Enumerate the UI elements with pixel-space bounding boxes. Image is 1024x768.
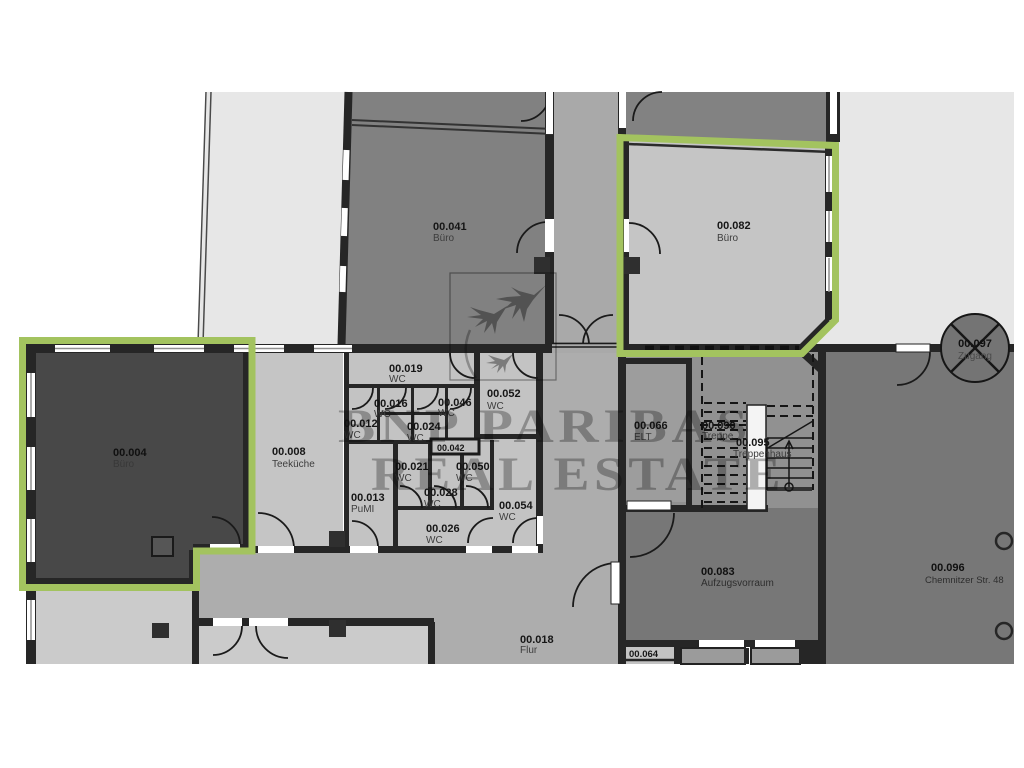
svg-text:Büro: Büro bbox=[717, 233, 739, 244]
svg-text:Büro: Büro bbox=[113, 459, 135, 470]
svg-text:00.082: 00.082 bbox=[717, 220, 751, 232]
svg-text:00.064: 00.064 bbox=[629, 649, 659, 660]
svg-text:00.004: 00.004 bbox=[113, 447, 148, 459]
svg-text:Flur: Flur bbox=[520, 645, 538, 656]
svg-text:Büro: Büro bbox=[433, 233, 455, 244]
svg-text:Aufzugsvorraum: Aufzugsvorraum bbox=[701, 578, 774, 589]
svg-text:REAL ESTATE: REAL ESTATE bbox=[371, 448, 785, 501]
svg-text:Zugang: Zugang bbox=[958, 351, 992, 362]
svg-text:Teeküche: Teeküche bbox=[272, 459, 315, 470]
svg-text:WC: WC bbox=[426, 535, 443, 546]
svg-text:00.008: 00.008 bbox=[272, 446, 306, 458]
svg-text:PuMI: PuMI bbox=[351, 504, 374, 515]
svg-text:00.041: 00.041 bbox=[433, 221, 467, 233]
svg-text:00.083: 00.083 bbox=[701, 566, 735, 578]
svg-text:00.054: 00.054 bbox=[499, 500, 534, 512]
svg-text:Chemnitzer Str. 48: Chemnitzer Str. 48 bbox=[925, 575, 1004, 586]
svg-text:00.026: 00.026 bbox=[426, 523, 460, 535]
svg-text:00.052: 00.052 bbox=[487, 388, 521, 400]
svg-text:WC: WC bbox=[389, 374, 406, 385]
svg-text:BNP PARIBAS: BNP PARIBAS bbox=[338, 400, 752, 453]
svg-text:00.097: 00.097 bbox=[958, 338, 992, 350]
svg-text:WC: WC bbox=[499, 512, 516, 523]
svg-text:00.096: 00.096 bbox=[931, 562, 965, 574]
